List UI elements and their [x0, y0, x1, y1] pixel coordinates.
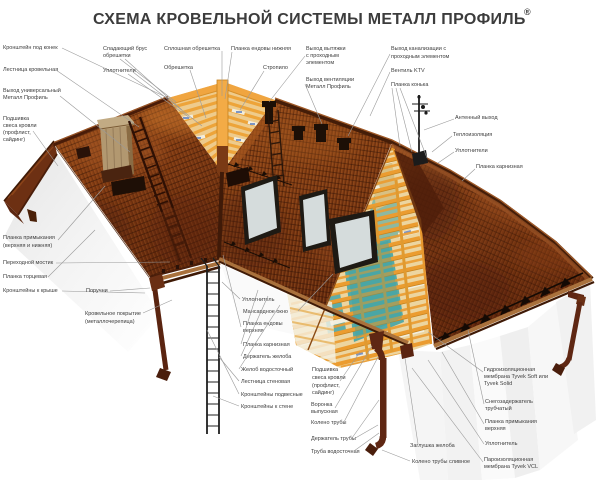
svg-text:с проходным: с проходным: [306, 53, 339, 59]
svg-text:Желоб водосточный: Желоб водосточный: [241, 366, 293, 373]
svg-text:(верхняя и нижняя): (верхняя и нижняя): [3, 243, 52, 249]
svg-text:Спадающий брус: Спадающий брус: [103, 45, 147, 52]
svg-text:(металлочерепица): (металлочерепица): [85, 319, 135, 325]
svg-text:Гидроизоляционная: Гидроизоляционная: [484, 367, 535, 373]
svg-text:Уплотнители: Уплотнители: [103, 68, 136, 74]
svg-text:Планка примыкания: Планка примыкания: [3, 235, 55, 241]
svg-text:Колено трубы: Колено трубы: [311, 420, 347, 426]
svg-text:Сплошная обрешетка: Сплошная обрешетка: [164, 46, 221, 52]
svg-text:Уплотнитель: Уплотнитель: [485, 441, 518, 447]
svg-text:Металл Профиль: Металл Профиль: [3, 95, 48, 101]
svg-text:Выход универсальный: Выход универсальный: [3, 87, 61, 94]
svg-text:Держатель трубы: Держатель трубы: [311, 436, 356, 442]
svg-text:®: ®: [524, 7, 531, 17]
svg-text:мембрана Tyvek VCL: мембрана Tyvek VCL: [484, 464, 538, 470]
svg-text:Кровельное покрытие: Кровельное покрытие: [85, 311, 141, 317]
svg-text:обрешетки: обрешетки: [103, 53, 131, 59]
svg-text:Планка торцевая: Планка торцевая: [3, 274, 47, 280]
svg-text:выпускная: выпускная: [311, 409, 338, 415]
svg-text:Снегозадержатель: Снегозадержатель: [485, 399, 533, 405]
svg-text:Стропило: Стропило: [263, 65, 288, 71]
svg-text:(профлист,: (профлист,: [3, 130, 31, 136]
svg-text:Уплотнители: Уплотнители: [455, 148, 488, 154]
svg-text:Подшивка: Подшивка: [312, 367, 339, 373]
svg-text:Планка конька: Планка конька: [391, 82, 429, 88]
svg-text:Колено трубы сливное: Колено трубы сливное: [412, 459, 470, 465]
svg-text:Кронштейны подвесные: Кронштейны подвесные: [241, 391, 303, 398]
svg-text:Труба водосточная: Труба водосточная: [311, 449, 360, 455]
svg-text:Пароизоляционная: Пароизоляционная: [484, 457, 533, 463]
svg-text:Планка ендовы: Планка ендовы: [243, 321, 283, 327]
svg-text:Планка примыкания: Планка примыкания: [485, 419, 537, 425]
svg-text:Tyvek Solid: Tyvek Solid: [484, 381, 512, 387]
svg-text:Металл Профиль: Металл Профиль: [306, 84, 351, 90]
svg-text:Лестница кровельная: Лестница кровельная: [3, 67, 58, 73]
svg-text:Кронштейны к крыше: Кронштейны к крыше: [3, 287, 58, 294]
svg-text:трубчатый: трубчатый: [485, 405, 512, 412]
svg-text:Кронштейны к стене: Кронштейны к стене: [241, 403, 293, 410]
svg-text:сайдинг): сайдинг): [3, 136, 25, 143]
svg-text:Обрешетка: Обрешетка: [164, 65, 194, 71]
svg-text:мембрана Tyvek Soft или: мембрана Tyvek Soft или: [484, 374, 548, 380]
svg-text:Выход вентиляции: Выход вентиляции: [306, 77, 354, 83]
svg-text:Антенный выход: Антенный выход: [455, 114, 498, 121]
svg-text:Вентиль KTV: Вентиль KTV: [391, 68, 425, 74]
svg-text:Переходной мостик: Переходной мостик: [3, 259, 54, 266]
svg-text:Планка карнизная: Планка карнизная: [476, 164, 523, 170]
svg-text:СХЕМА КРОВЕЛЬНОЙ СИСТЕМЫ МЕТАЛ: СХЕМА КРОВЕЛЬНОЙ СИСТЕМЫ МЕТАЛЛ ПРОФИЛЬ: [93, 9, 526, 28]
svg-text:Уплотнитель: Уплотнитель: [242, 297, 275, 303]
svg-text:свеса кровли: свеса кровли: [3, 123, 37, 129]
svg-text:проходным элементом: проходным элементом: [391, 54, 450, 60]
svg-text:Подшивка: Подшивка: [3, 116, 30, 122]
svg-text:Планка карнизная: Планка карнизная: [243, 342, 290, 348]
svg-text:элементом: элементом: [306, 60, 334, 66]
svg-text:Планка ендовы нижняя: Планка ендовы нижняя: [231, 46, 291, 52]
svg-text:верхняя: верхняя: [485, 426, 506, 432]
svg-text:Кронштейн под конек: Кронштейн под конек: [3, 44, 58, 51]
svg-text:Мансардное окно: Мансардное окно: [243, 309, 288, 315]
svg-text:Заглушка желоба: Заглушка желоба: [410, 443, 456, 449]
svg-text:Выход канализации с: Выход канализации с: [391, 46, 446, 52]
svg-text:Теплоизоляция: Теплоизоляция: [453, 132, 492, 138]
svg-text:(профлист,: (профлист,: [312, 383, 340, 389]
svg-text:Выход вытяжки: Выход вытяжки: [306, 46, 346, 52]
svg-text:Лестница стеновая: Лестница стеновая: [241, 379, 290, 385]
svg-text:сайдинг): сайдинг): [312, 389, 334, 396]
svg-text:Поручни: Поручни: [86, 288, 108, 294]
svg-text:Держатель желоба: Держатель желоба: [243, 354, 292, 360]
svg-text:Воронка: Воронка: [311, 402, 333, 408]
